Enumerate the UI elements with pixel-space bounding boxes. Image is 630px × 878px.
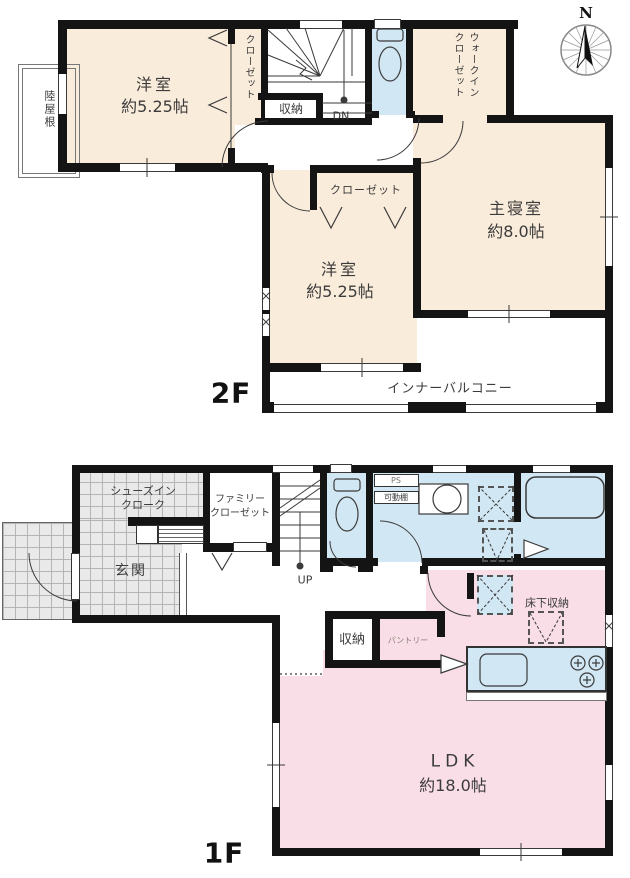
wall — [365, 20, 372, 118]
wall — [408, 402, 466, 413]
wall — [262, 402, 274, 413]
room-label-bedroom-south-2f: 洋室 — [321, 262, 359, 278]
porch-tile — [2, 522, 78, 620]
walkin-closet-line2: クローゼット — [452, 32, 463, 98]
family-closet-label-1: ファミリー — [215, 495, 265, 505]
window — [300, 20, 342, 29]
wall — [266, 543, 280, 552]
storage-1f-label: 収納 — [339, 634, 365, 647]
flat-roof-label: 陸屋根 — [41, 90, 57, 129]
floor2-label: 2F — [211, 377, 252, 410]
room-bedroom-west-2f — [63, 25, 235, 167]
window — [272, 723, 280, 807]
wall — [320, 565, 333, 572]
shoes-closet-label-1: シューズイン — [110, 486, 175, 497]
window — [605, 765, 613, 800]
room-ldk-upper — [426, 570, 609, 652]
movable-shelf-label: 可動棚 — [384, 494, 408, 502]
window — [58, 74, 67, 114]
pantry-label: パントリー — [388, 637, 428, 645]
stairs-up-label: UP — [298, 575, 313, 586]
wall — [310, 165, 421, 173]
entrance-step-line — [179, 553, 187, 615]
wall — [228, 148, 235, 164]
wall — [506, 20, 514, 123]
linen-shelf-upper — [478, 486, 514, 522]
wall — [310, 165, 317, 210]
window — [321, 363, 403, 372]
linen-shelf-lower — [482, 528, 513, 562]
wall — [320, 465, 327, 572]
wall — [413, 115, 443, 123]
entrance-label: 玄関 — [115, 564, 147, 578]
stairs-down-label: DN — [333, 111, 350, 122]
kitchen-counter-edge — [466, 692, 607, 701]
underfloor-storage-label: 床下収納 — [525, 598, 569, 609]
compass-north-label: N — [579, 4, 593, 22]
family-closet-door — [233, 542, 267, 552]
wall — [58, 20, 518, 29]
wall — [605, 318, 613, 413]
shoe-cabinet — [136, 525, 158, 544]
room-area-bedroom-west-2f: 約5.25帖 — [121, 99, 189, 115]
wall — [203, 543, 236, 552]
wall — [514, 554, 521, 566]
wall — [366, 465, 373, 572]
window — [533, 465, 570, 473]
window — [605, 168, 613, 266]
floor1-label: 1F — [204, 837, 245, 870]
window — [120, 163, 175, 172]
wall — [258, 93, 322, 100]
wall — [325, 611, 445, 619]
wall — [521, 558, 605, 566]
room-area-ldk: 約18.0帖 — [419, 778, 487, 794]
stairs-1f — [280, 480, 320, 569]
room-area-master-bedroom: 約8.0帖 — [487, 224, 544, 240]
wall — [420, 566, 428, 574]
wall — [372, 611, 380, 668]
wall — [413, 158, 421, 318]
pipe-space-label: PS — [391, 477, 401, 485]
wall — [203, 473, 210, 552]
entrance-door-leaf — [71, 553, 80, 600]
window — [273, 465, 313, 473]
walkin-closet-line1: ウォークイン — [467, 32, 478, 98]
bathroom-1f — [518, 470, 609, 562]
wall — [596, 402, 613, 413]
wall — [255, 118, 372, 125]
wall — [365, 111, 379, 118]
storage-2f-label: 収納 — [279, 103, 303, 115]
wall — [72, 465, 80, 555]
floor-plan: N 洋室 約5.25帖 クローゼット 収納 DN ウォークイン クローゼット 主… — [0, 0, 630, 878]
wall — [358, 565, 373, 572]
room-ldk-west — [280, 676, 325, 852]
wall — [316, 93, 323, 123]
wall — [514, 473, 521, 522]
wall — [325, 660, 445, 668]
window — [605, 615, 613, 647]
window — [330, 464, 352, 473]
wall — [406, 20, 413, 118]
toilet-1f — [324, 470, 370, 562]
wall — [320, 558, 378, 566]
kitchen-counter — [466, 646, 607, 692]
compass: N — [556, 2, 616, 86]
shoe-cabinet-shelves — [158, 525, 204, 544]
window — [433, 465, 466, 473]
room-area-bedroom-south-2f: 約5.25帖 — [306, 284, 374, 300]
family-closet-label-2: クローゼット — [210, 509, 270, 519]
closet-south-label: クローゼット — [330, 185, 402, 196]
window — [480, 848, 562, 856]
window — [262, 288, 270, 310]
window — [262, 314, 270, 336]
room-label-bedroom-west-2f: 洋室 — [136, 77, 174, 93]
underfloor-storage-box — [528, 611, 564, 644]
wall — [437, 611, 445, 637]
room-label-ldk: LDK — [431, 754, 480, 771]
wall — [228, 28, 235, 44]
wall — [72, 615, 280, 623]
walkin-closet-label: ウォークイン クローゼット — [440, 32, 480, 117]
window — [468, 310, 550, 318]
window — [374, 19, 401, 29]
shoes-closet-label-2: クローク — [121, 500, 165, 511]
room-label-master-bedroom: 主寝室 — [489, 201, 543, 217]
floor-storage-hatch — [477, 575, 513, 615]
compass-needle-icon — [585, 26, 593, 66]
closet-west-label: クローゼット — [241, 34, 256, 100]
toilet-2f — [370, 25, 410, 115]
inner-balcony-label: インナーバルコニー — [387, 383, 513, 396]
